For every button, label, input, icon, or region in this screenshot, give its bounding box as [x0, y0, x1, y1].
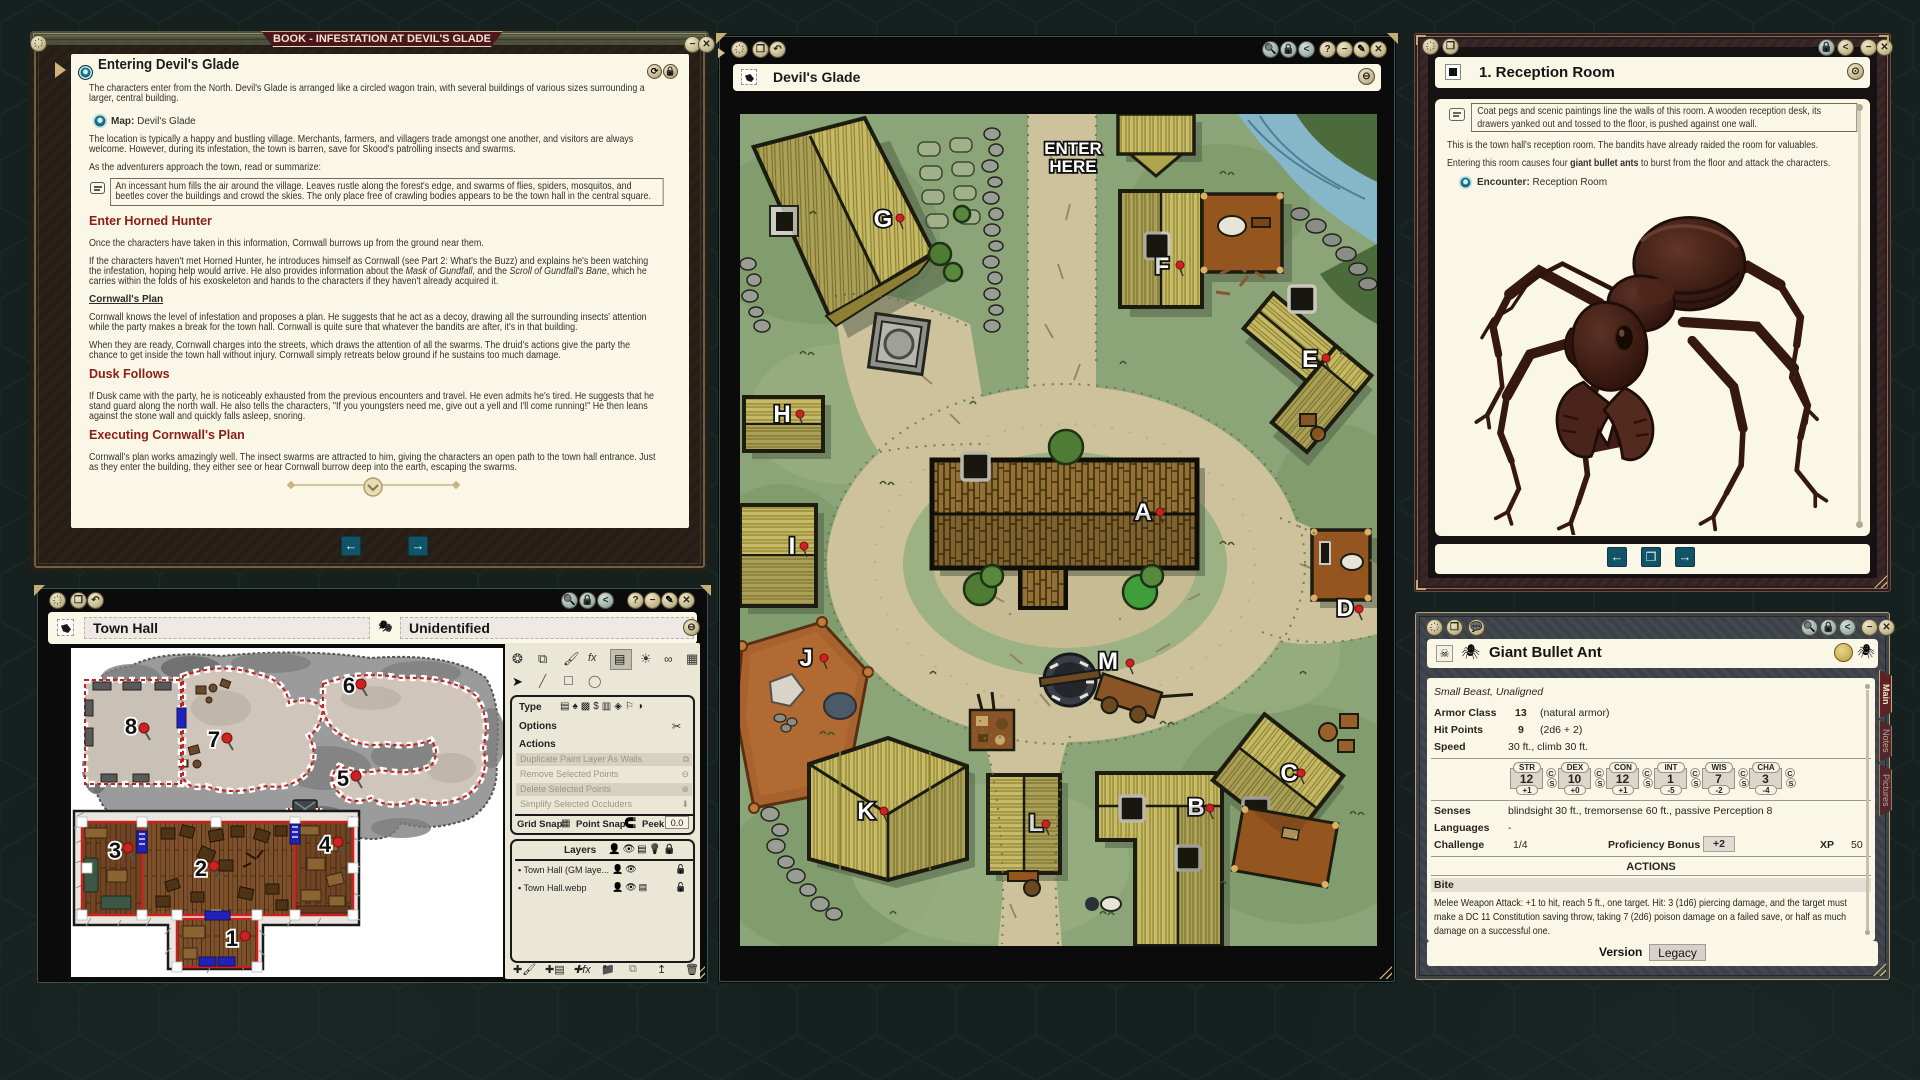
svg-text:5: 5	[337, 766, 349, 791]
svg-text:H: H	[773, 401, 790, 428]
svg-text:M: M	[1098, 648, 1118, 675]
svg-text:3: 3	[109, 838, 121, 863]
svg-text:G: G	[874, 206, 893, 233]
svg-text:D: D	[1336, 595, 1353, 622]
svg-text:4: 4	[319, 832, 332, 857]
svg-text:E: E	[1302, 346, 1318, 373]
svg-text:J: J	[799, 645, 812, 672]
svg-text:8: 8	[125, 714, 137, 739]
svg-text:ENTER: ENTER	[1044, 139, 1102, 158]
svg-text:7: 7	[208, 727, 220, 752]
svg-text:2: 2	[195, 856, 207, 881]
svg-text:1: 1	[226, 926, 238, 951]
svg-text:6: 6	[343, 673, 355, 698]
svg-text:HERE: HERE	[1049, 157, 1096, 176]
svg-text:K: K	[857, 798, 875, 825]
